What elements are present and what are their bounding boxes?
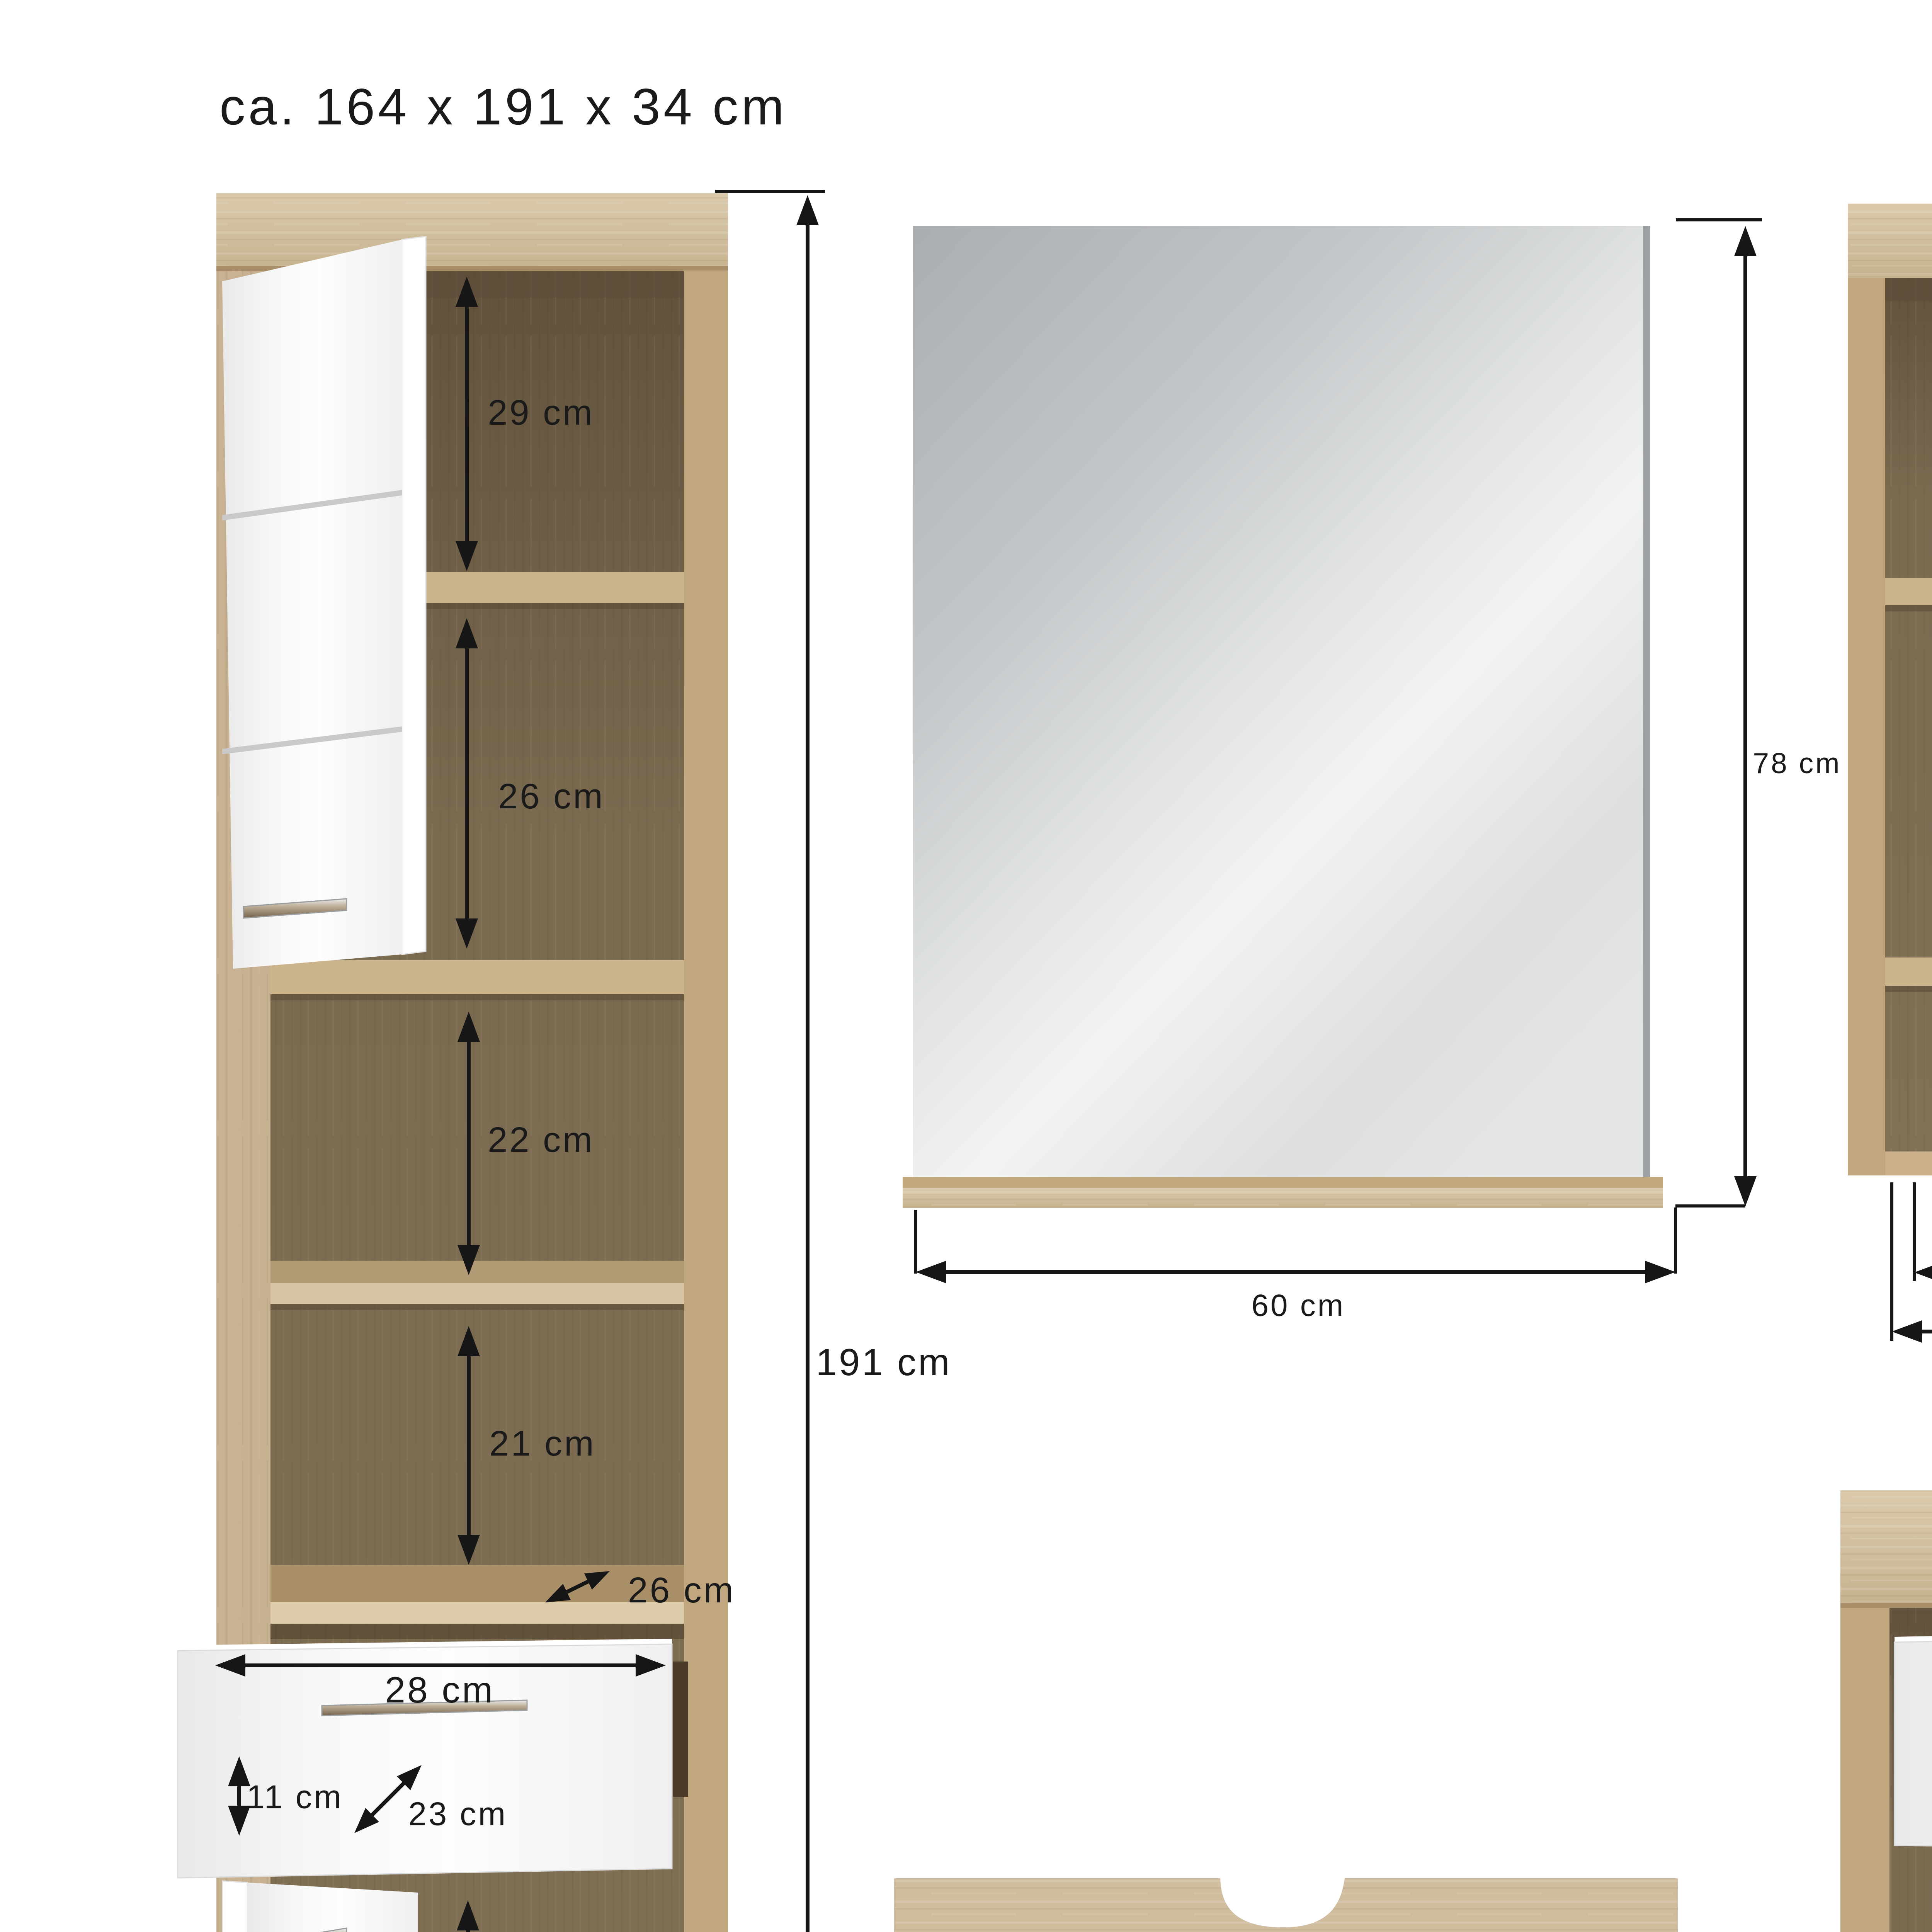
svg-text:21 cm: 21 cm: [489, 1424, 596, 1463]
svg-text:26 cm: 26 cm: [628, 1570, 735, 1610]
svg-text:29 cm: 29 cm: [488, 393, 594, 432]
svg-text:23 cm: 23 cm: [408, 1796, 507, 1833]
svg-text:ca. 164 x 191 x 34 cm: ca. 164 x 191 x 34 cm: [219, 78, 787, 136]
svg-text:60 cm: 60 cm: [1252, 1288, 1345, 1323]
svg-text:22 cm: 22 cm: [488, 1120, 594, 1160]
svg-text:78 cm: 78 cm: [1753, 747, 1841, 779]
svg-text:26 cm: 26 cm: [498, 777, 605, 816]
svg-text:11 cm: 11 cm: [247, 1779, 343, 1816]
svg-text:191 cm: 191 cm: [816, 1341, 951, 1383]
svg-text:28 cm: 28 cm: [385, 1670, 495, 1711]
